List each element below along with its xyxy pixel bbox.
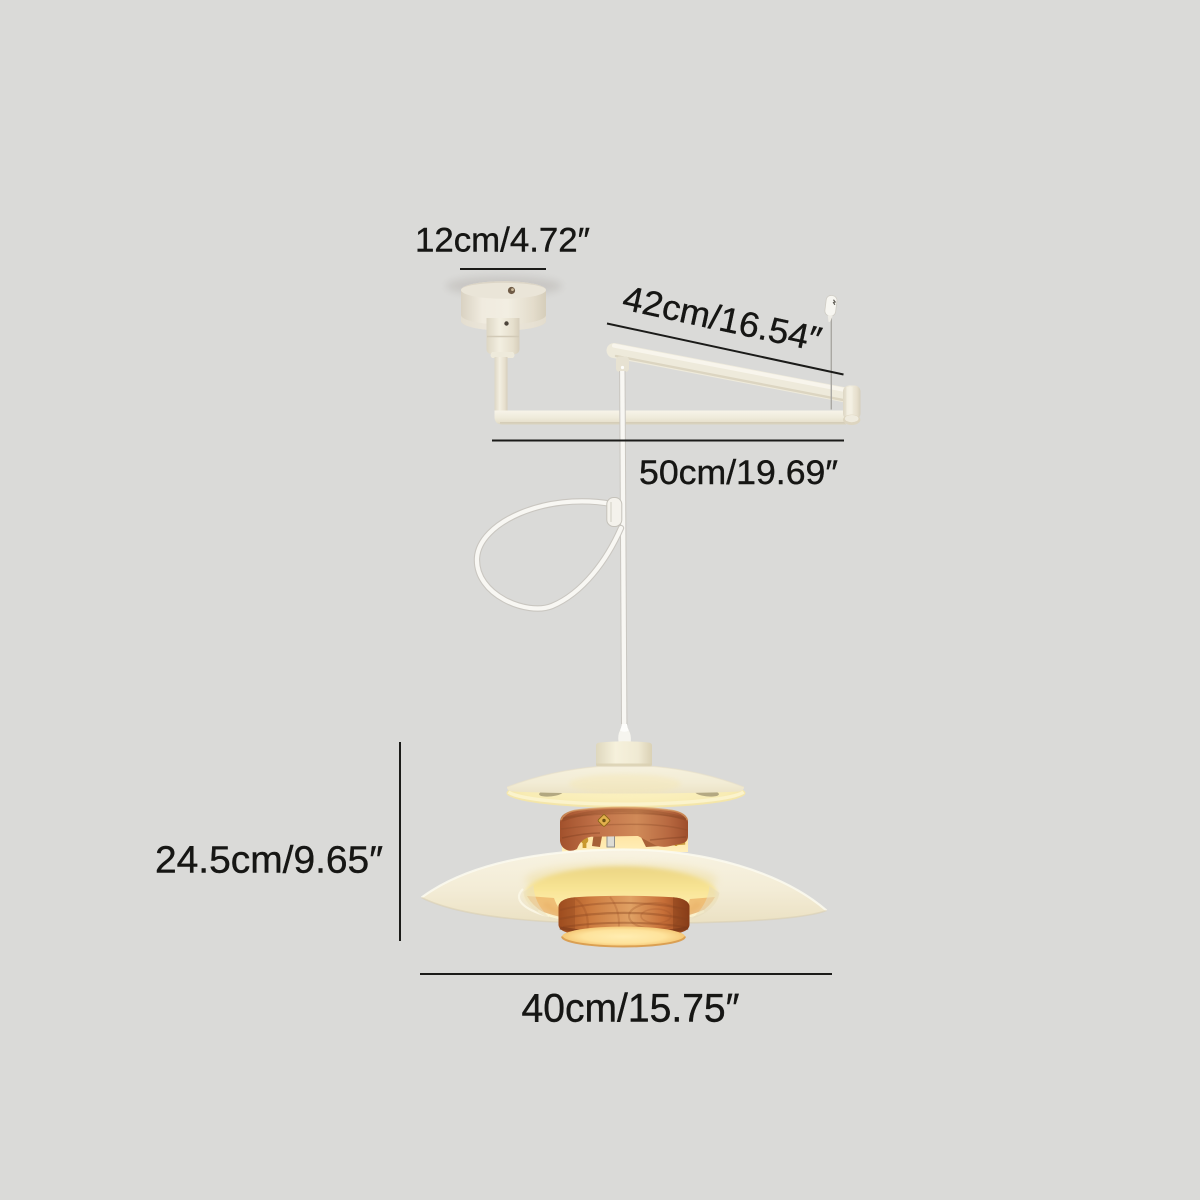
svg-text:50cm/19.69″: 50cm/19.69″ <box>639 454 838 492</box>
svg-text:12cm/4.72″: 12cm/4.72″ <box>415 222 590 260</box>
svg-text:24.5cm/9.65″: 24.5cm/9.65″ <box>155 840 383 882</box>
svg-text:40cm/15.75″: 40cm/15.75″ <box>522 987 740 1031</box>
